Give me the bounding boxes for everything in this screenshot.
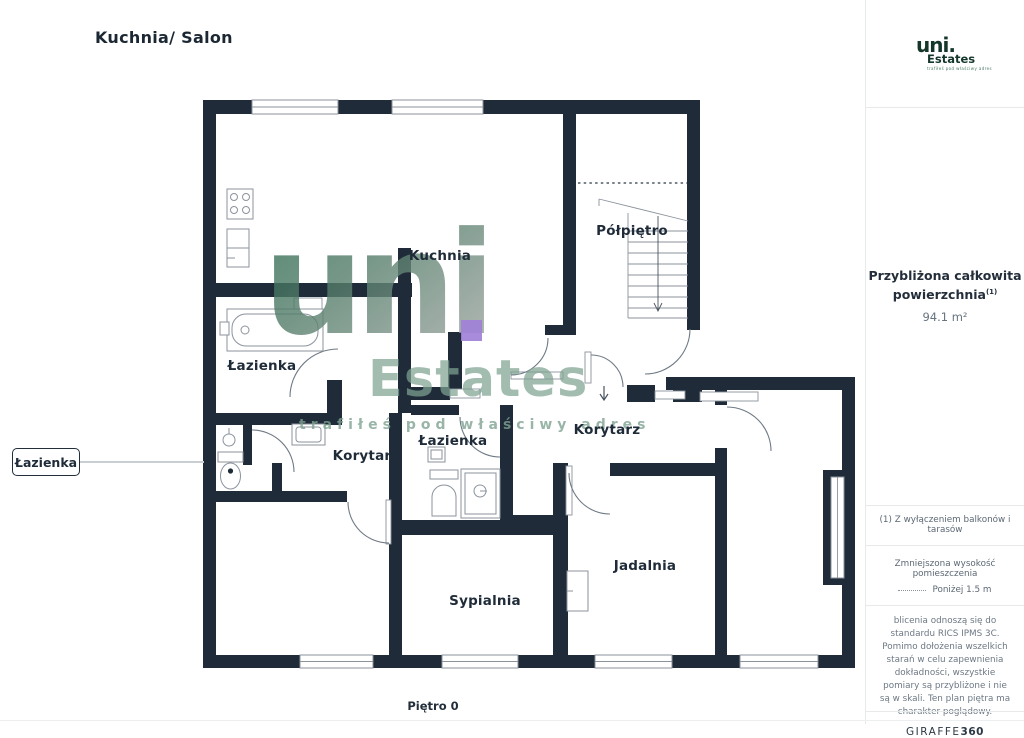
washing-machine-icon	[428, 447, 445, 462]
disclaimer-text: blicenia odnoszą się do standardu RICS I…	[866, 605, 1024, 719]
disclaimer-block: blicenia odnoszą się do standardu RICS I…	[866, 605, 1024, 711]
room-label-jadalnia: Jadalnia	[614, 558, 676, 574]
radiator-icon	[567, 571, 588, 611]
bathtub-icon	[220, 309, 323, 351]
callout-leader-line	[78, 461, 204, 463]
kitchen-sink-icon	[227, 229, 249, 267]
reduced-height-note: Zmniejszona wysokość pomieszczenia Poniż…	[866, 545, 1024, 605]
shower-icon	[461, 469, 500, 518]
room-label-lazienka-mid: Łazienka	[419, 433, 488, 449]
washing-machine-icon	[292, 424, 325, 445]
sidebar-section-divider	[866, 711, 1024, 712]
walls	[203, 100, 855, 668]
room-label-korytarz-right: Korytarz	[574, 422, 641, 438]
stove-icon	[227, 189, 253, 219]
floor-label: Piętro 0	[383, 699, 483, 713]
sidebar-section-divider	[866, 107, 1024, 108]
total-area-value: 94.1 m²	[866, 310, 1024, 324]
room-label-lazienka-left: Łazienka	[228, 358, 297, 374]
toilet-icon	[218, 428, 243, 489]
room-label-kuchnia: Kuchnia	[409, 248, 471, 264]
toilet-icon	[430, 470, 458, 516]
room-label-korytarz-left: Korytarz	[333, 448, 400, 464]
room-label-polpietro: Półpiętro	[596, 223, 668, 239]
area-footnote-marker: (1)	[986, 288, 997, 296]
giraffe360-brand: GIRAFFE360	[866, 726, 1024, 738]
stairs-icon	[599, 199, 688, 318]
step-arrow-icon	[600, 386, 608, 400]
logo-tagline: trafiłeś pod właściwy adres	[927, 66, 992, 71]
reduced-height-title: Zmniejszona wysokość pomieszczenia	[866, 559, 1024, 579]
total-area-block: Przybliżona całkowita powierzchnia(1) 94…	[866, 268, 1024, 324]
room-label-sypialnia: Sypialnia	[449, 593, 521, 609]
wall-slots	[294, 298, 758, 544]
callout-lazienka: Łazienka	[12, 448, 80, 476]
page-title: Kuchnia/ Salon	[95, 28, 233, 47]
dotted-line-sample	[898, 590, 926, 591]
floorplan-page: uni Estates trafiłeś pod właściwy adres …	[0, 0, 1024, 724]
footnote-balconies: (1) Z wyłączeniem balkonów i tarasów	[866, 505, 1024, 545]
logo-estates-text: Estates	[927, 52, 975, 66]
total-area-label: Przybliżona całkowita powierzchnia(1)	[866, 268, 1024, 303]
sidebar-logo: uni. Estates trafiłeś pod właściwy adres	[866, 0, 1024, 107]
reduced-height-legend: Poniżej 1.5 m	[932, 585, 991, 595]
page-bottom-rule	[0, 720, 1024, 721]
